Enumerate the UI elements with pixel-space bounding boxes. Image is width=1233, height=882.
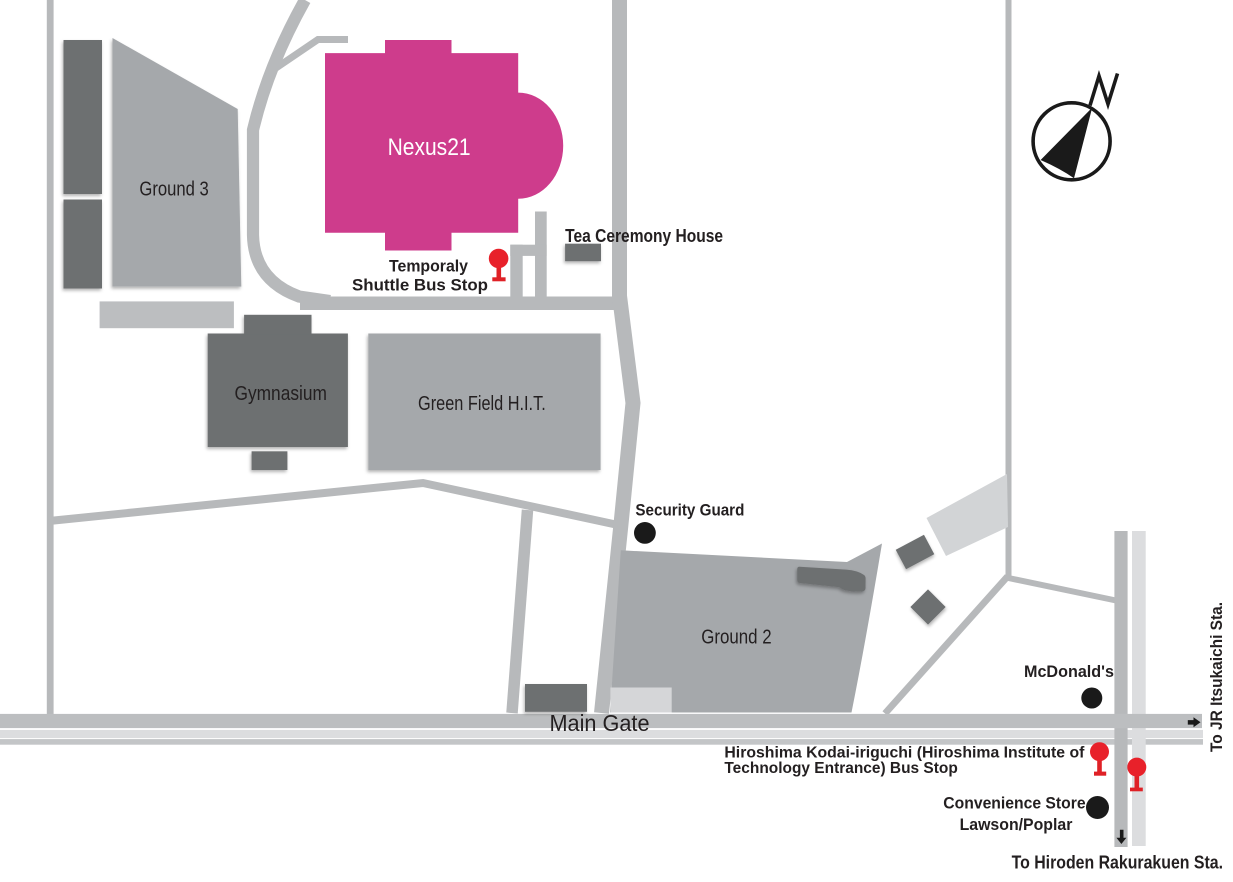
svg-text:Gymnasium: Gymnasium <box>235 382 327 405</box>
svg-text:Nexus21: Nexus21 <box>388 134 471 161</box>
svg-text:Technology Entrance) Bus Stop: Technology Entrance) Bus Stop <box>724 760 957 777</box>
svg-text:Ground 3: Ground 3 <box>139 179 208 201</box>
svg-text:Convenience Store: Convenience Store <box>943 795 1085 813</box>
svg-text:Green Field H.I.T.: Green Field H.I.T. <box>418 392 546 415</box>
svg-text:Tea Ceremony House: Tea Ceremony House <box>565 226 723 246</box>
svg-text:Main Gate: Main Gate <box>550 710 650 736</box>
svg-text:Lawson/Poplar: Lawson/Poplar <box>960 816 1073 834</box>
svg-text:Security Guard: Security Guard <box>635 501 744 520</box>
svg-text:Hiroshima Kodai-iriguchi (Hiro: Hiroshima Kodai-iriguchi (Hiroshima Inst… <box>724 745 1085 762</box>
svg-text:Temporaly: Temporaly <box>389 257 468 276</box>
svg-text:McDonald's: McDonald's <box>1024 662 1114 681</box>
svg-text:Ground 2: Ground 2 <box>701 626 771 649</box>
svg-text:To Hiroden Rakurakuen Sta.: To Hiroden Rakurakuen Sta. <box>1012 851 1223 872</box>
svg-text:Shuttle Bus Stop: Shuttle Bus Stop <box>352 275 488 294</box>
svg-text:To JR Itsukaichi Sta.: To JR Itsukaichi Sta. <box>1208 602 1226 752</box>
